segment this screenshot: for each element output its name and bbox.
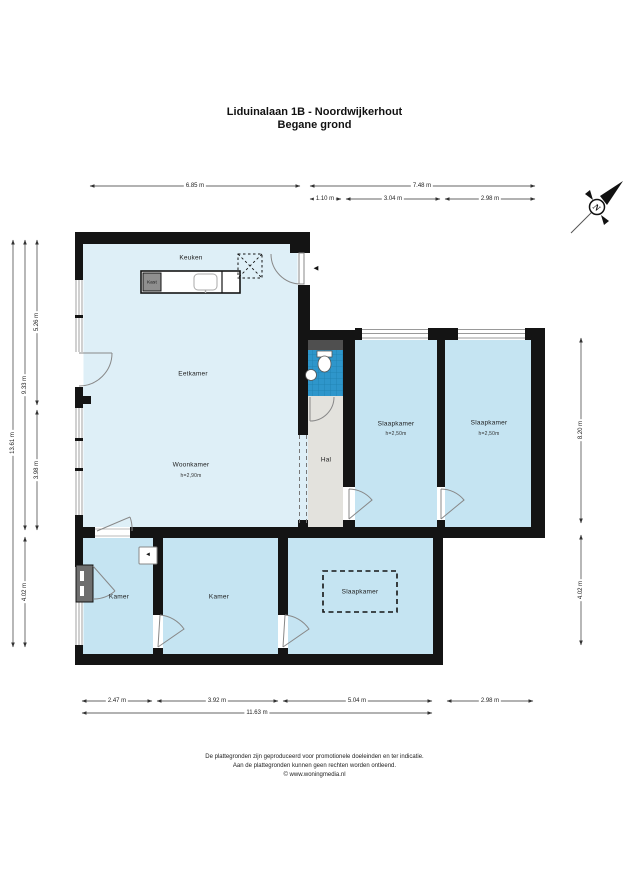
kitchen-kast [143, 273, 161, 291]
floorplan-page: N Liduinalaan 1B - Noordwijkerhout Began… [0, 0, 629, 890]
toilet-shelf [308, 340, 343, 350]
kitchen-sink [194, 274, 217, 293]
room-kamer2-floor [163, 538, 278, 655]
toilet-fixture [317, 351, 332, 372]
north-arrow-icon [600, 181, 623, 205]
room-slaapkamer1-floor [355, 340, 437, 527]
window-slaapkamer2 [458, 328, 525, 340]
floor-plan-drawing: N [0, 0, 629, 890]
kitchen-counter [141, 271, 240, 293]
window-slaapkamer1 [362, 328, 428, 340]
window-left-lower [75, 408, 84, 515]
window-left-bottom-wing [75, 602, 84, 645]
room-slaapkamer3-floor [288, 538, 433, 655]
window-left-upper [75, 280, 84, 352]
room-slaapkamer2-floor [445, 340, 531, 527]
wall-unit-box [139, 547, 157, 564]
toilet-sink [306, 370, 317, 381]
compass: N [571, 181, 623, 233]
